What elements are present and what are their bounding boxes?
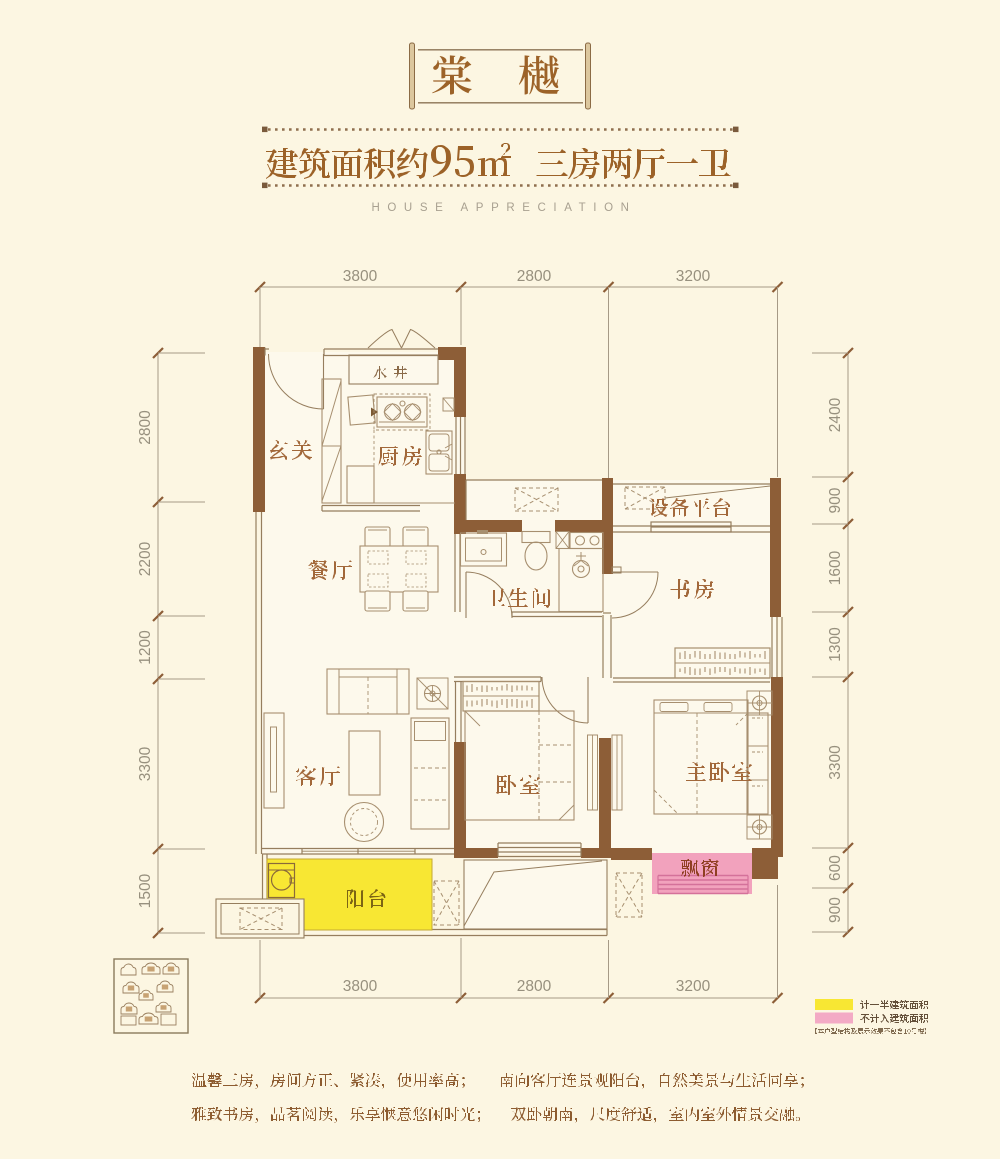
svg-text:2200: 2200 [137, 541, 154, 576]
svg-text:3800: 3800 [343, 268, 378, 285]
svg-text:600: 600 [827, 855, 844, 881]
svg-text:900: 900 [827, 487, 844, 513]
svg-text:1500: 1500 [137, 873, 154, 908]
svg-text:HOUSE APPRECIATION: HOUSE APPRECIATION [371, 202, 636, 214]
svg-text:2800: 2800 [517, 268, 552, 285]
svg-text:3300: 3300 [137, 746, 154, 781]
svg-text:3200: 3200 [676, 978, 711, 995]
svg-text:1300: 1300 [827, 627, 844, 662]
svg-text:3300: 3300 [827, 745, 844, 780]
svg-text:2400: 2400 [827, 397, 844, 432]
svg-text:3200: 3200 [676, 268, 711, 285]
svg-text:900: 900 [827, 897, 844, 923]
svg-text:1600: 1600 [827, 550, 844, 585]
svg-text:2800: 2800 [137, 410, 154, 445]
svg-text:2800: 2800 [517, 978, 552, 995]
svg-text:1200: 1200 [137, 630, 154, 665]
svg-text:3800: 3800 [343, 978, 378, 995]
